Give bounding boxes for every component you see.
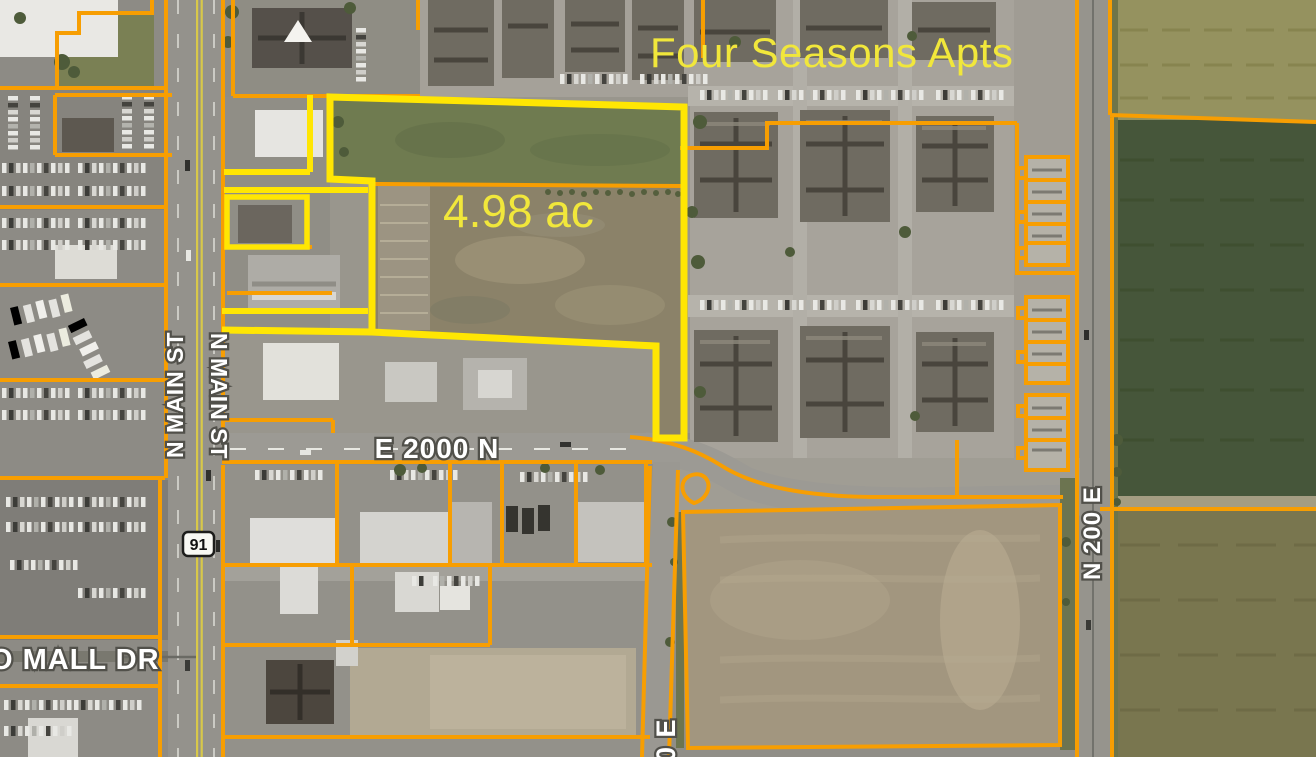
building	[248, 255, 340, 313]
aerial-parcel-map: Four Seasons Apts 4.98 ac E 2000 N N MAI…	[0, 0, 1316, 757]
route-91-text: 91	[190, 537, 208, 554]
building	[263, 343, 339, 400]
church-building	[252, 8, 352, 68]
parcel-corridor-south	[222, 330, 372, 332]
building	[360, 512, 448, 564]
route-91-shield: 91	[183, 532, 220, 556]
building	[238, 205, 292, 243]
building	[266, 660, 334, 724]
n-main-st-label-west: N MAIN ST	[162, 331, 188, 458]
building	[578, 502, 648, 562]
dirt-field	[676, 478, 1076, 750]
map-canvas: Four Seasons Apts 4.98 ac E 2000 N N MAI…	[0, 0, 1316, 757]
building	[452, 502, 492, 564]
trucks	[506, 505, 550, 534]
building	[385, 362, 437, 402]
building	[280, 566, 318, 614]
four-seasons-label: Four Seasons Apts	[650, 29, 1013, 76]
building	[440, 586, 470, 610]
parcel-area-label: 4.98 ac	[443, 185, 594, 237]
garage-rows	[1028, 158, 1066, 468]
mall-dr-label: O MALL DR	[0, 644, 160, 676]
building	[55, 245, 117, 279]
n-200-e-label: N 200 E	[1079, 486, 1106, 580]
building	[395, 572, 439, 612]
building	[28, 718, 78, 757]
building	[463, 358, 527, 410]
building	[250, 518, 336, 564]
n200e-road	[1076, 0, 1110, 757]
east-fields	[1108, 0, 1316, 757]
e-2000-n-label: E 2000 N	[375, 433, 500, 464]
building	[62, 118, 114, 152]
n-main-st-label-east: N MAIN ST	[206, 333, 232, 460]
partial-00e-label: 00 E	[651, 718, 681, 757]
